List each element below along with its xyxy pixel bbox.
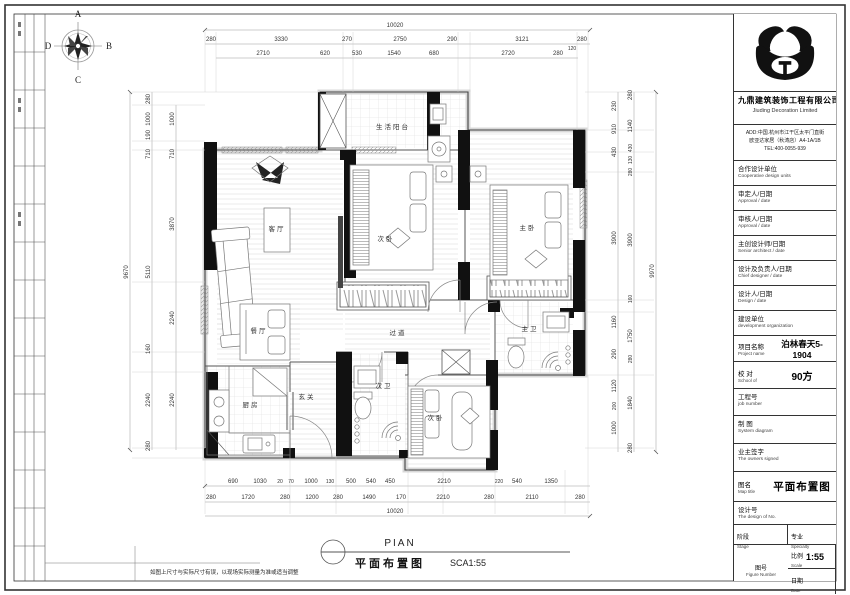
room-label-entry: 玄关 <box>299 392 316 401</box>
svg-text:280: 280 <box>333 495 344 501</box>
company-logo <box>734 14 836 92</box>
svg-text:1350: 1350 <box>544 479 558 485</box>
svg-text:20: 20 <box>277 479 283 485</box>
svg-text:1540: 1540 <box>387 51 401 57</box>
stage-cell: 阶段 Stage <box>734 525 788 545</box>
svg-text:160: 160 <box>628 295 634 304</box>
svg-text:450: 450 <box>385 479 396 485</box>
svg-text:1120: 1120 <box>612 379 618 393</box>
room-label-bedroom3: 次卧 <box>428 413 445 422</box>
svg-text:910: 910 <box>612 123 618 134</box>
compass-label-e: B <box>106 41 112 51</box>
svg-text:3121: 3121 <box>515 37 529 43</box>
svg-text:3900: 3900 <box>628 233 634 247</box>
svg-text:280: 280 <box>628 168 634 177</box>
svg-text:3870: 3870 <box>170 217 176 231</box>
figure-number-cell: 图号 Figure Number <box>734 545 788 594</box>
address-line2: 欧亚达家居（秋涛店）A4-1A/1B <box>738 137 832 145</box>
date-cell: 日期 Date <box>788 569 836 594</box>
dimensions-top: 10020 280 3330 270 2750 290 3121 280 120… <box>206 23 588 57</box>
svg-text:1720: 1720 <box>241 495 255 501</box>
svg-text:280: 280 <box>577 37 588 43</box>
dim-left-total: 9670 <box>124 265 130 279</box>
svg-text:2240: 2240 <box>170 393 176 407</box>
proofread-value: 90方 <box>772 368 832 383</box>
svg-text:2240: 2240 <box>146 393 152 407</box>
system-diagram-row: 制 图 System diagram <box>734 416 836 444</box>
svg-text:1000: 1000 <box>612 421 618 435</box>
map-title-value: 平面布置图 <box>772 479 832 494</box>
dim-right-total: 9970 <box>650 264 656 278</box>
company-name: 九鼎建筑装饰工程有限公司 Jiuding Decoration Limited <box>734 92 836 125</box>
svg-text:5110: 5110 <box>146 265 152 279</box>
svg-text:1000: 1000 <box>170 112 176 126</box>
company-address: ADD:中国.杭州市江干区太平门直街 欧亚达家居（秋涛店）A4-1A/1B TE… <box>734 125 836 161</box>
room-label-balcony: 生活阳台 <box>376 122 410 131</box>
room-label-kitchen: 厨房 <box>243 400 260 409</box>
specialty-cell: 专业 Specialty <box>788 525 836 545</box>
sheet-note: 如图上尺寸与实际尺寸有误，以现场实际测量为准或适当调整 <box>45 546 299 581</box>
svg-text:710: 710 <box>170 148 176 159</box>
svg-text:1490: 1490 <box>362 495 376 501</box>
proofread-row: 校 对 School of 90方 <box>734 362 836 389</box>
svg-text:2750: 2750 <box>393 37 407 43</box>
svg-text:160: 160 <box>146 343 152 354</box>
svg-text:280: 280 <box>628 442 634 453</box>
scale-cell: 比例 Scale 1:55 <box>788 545 836 569</box>
svg-text:2210: 2210 <box>436 495 450 501</box>
svg-text:3330: 3330 <box>274 37 288 43</box>
footer-scale: SCA1:55 <box>450 558 486 568</box>
svg-text:2710: 2710 <box>256 51 270 57</box>
compass-label-w: D <box>45 41 52 51</box>
titleblock-bottom-grid: 阶段 Stage 专业 Specialty 比例 Scale 1:55 图号 F… <box>734 525 836 594</box>
svg-text:680: 680 <box>429 51 440 57</box>
svg-text:130: 130 <box>326 479 335 485</box>
svg-text:1200: 1200 <box>305 495 319 501</box>
svg-text:710: 710 <box>146 148 152 159</box>
footer-title: 平面布置图 <box>355 556 425 570</box>
svg-text:280: 280 <box>146 93 152 104</box>
svg-text:290: 290 <box>612 348 618 359</box>
svg-text:1140: 1140 <box>628 119 634 133</box>
svg-text:170: 170 <box>396 495 407 501</box>
svg-text:690: 690 <box>228 479 239 485</box>
svg-text:130: 130 <box>628 156 634 165</box>
svg-text:620: 620 <box>320 51 331 57</box>
drawing-sheet: A B C D <box>0 0 850 595</box>
note-text: 如图上尺寸与实际尺寸有误，以现场实际测量为准或适当调整 <box>150 568 299 576</box>
compass-rose: A B C D <box>45 9 112 85</box>
titleblock-row-reviewer: 审核人/日期 Approval / date <box>734 211 836 236</box>
svg-text:70: 70 <box>288 479 294 485</box>
titleblock-row-chief-designer: 设计及负责人/日期 Chief designer / date <box>734 261 836 286</box>
compass-label-n: A <box>75 9 82 19</box>
svg-text:280: 280 <box>628 89 634 100</box>
drawing-title-footer: PIAN 平面布置图 SCA1:55 <box>321 538 570 570</box>
titleblock-row-development-org: 建设单位 development organization <box>734 311 836 336</box>
room-label-bedroom2: 次卧 <box>378 234 395 243</box>
svg-text:2210: 2210 <box>437 479 451 485</box>
svg-text:1000: 1000 <box>146 112 152 126</box>
svg-text:540: 540 <box>366 479 377 485</box>
svg-text:2720: 2720 <box>501 51 515 57</box>
svg-text:280: 280 <box>575 495 586 501</box>
owner-signature-row: 业主签字 The owners signed <box>734 444 836 472</box>
svg-text:1160: 1160 <box>612 315 618 329</box>
svg-text:1840: 1840 <box>628 396 634 410</box>
titleblock-row-cooperative: 合作设计单位 Cooperative design units <box>734 161 836 186</box>
svg-text:2110: 2110 <box>526 495 540 501</box>
svg-text:430: 430 <box>612 146 618 157</box>
svg-text:190: 190 <box>146 129 152 140</box>
svg-text:500: 500 <box>346 479 357 485</box>
dimensions-left: 9670 280 1000 190 710 5110 160 2240 280 … <box>124 93 176 451</box>
titleblock-row-approver: 审定人/日期 Approval / date <box>734 186 836 211</box>
svg-text:120: 120 <box>568 46 577 52</box>
compass-label-s: C <box>75 75 81 85</box>
room-label-corridor: 过道 <box>390 328 407 337</box>
svg-text:270: 270 <box>342 37 353 43</box>
svg-text:280: 280 <box>146 440 152 451</box>
svg-text:200: 200 <box>612 402 618 411</box>
svg-text:220: 220 <box>495 479 504 485</box>
project-name-value: 泊林春天5-1904 <box>772 338 832 360</box>
design-number-row: 设计号 The design of No. <box>734 502 836 525</box>
title-block: 九鼎建筑装饰工程有限公司 Jiuding Decoration Limited … <box>733 14 836 581</box>
room-label-living: 客厅 <box>269 224 286 233</box>
dimensions-bottom: 690 1030 20 70 1000 130 500 540 450 2210… <box>206 479 586 515</box>
svg-text:1000: 1000 <box>304 479 318 485</box>
scale-value: 1:55 <box>806 552 824 562</box>
titleblock-row-designer: 设计人/日期 Design / date <box>734 286 836 311</box>
svg-text:230: 230 <box>612 100 618 111</box>
svg-text:430: 430 <box>628 144 634 153</box>
titleblock-row-senior-architect: 主创设计师/日期 Senior architect / date <box>734 236 836 261</box>
svg-text:280: 280 <box>628 355 634 364</box>
dim-top-total: 10020 <box>387 23 404 29</box>
address-line1: ADD:中国.杭州市江干区太平门直街 <box>738 129 832 137</box>
map-title-row: 图名 Map title 平面布置图 <box>734 472 836 502</box>
room-label-master-bath: 主卫 <box>522 324 539 333</box>
floor-plan-canvas: A B C D <box>0 0 850 595</box>
svg-text:280: 280 <box>280 495 291 501</box>
tv-cabinet <box>338 216 343 288</box>
company-tel: TEL:400-0055-939 <box>738 145 832 153</box>
dim-bottom-total: 10020 <box>387 509 404 515</box>
room-label-bath2: 次卫 <box>376 381 393 390</box>
room-label-master: 主卧 <box>520 223 537 232</box>
svg-text:1030: 1030 <box>253 479 267 485</box>
svg-text:1750: 1750 <box>628 329 634 343</box>
bedroom3-bed <box>408 386 490 458</box>
svg-text:280: 280 <box>553 51 564 57</box>
svg-text:2240: 2240 <box>170 311 176 325</box>
svg-text:280: 280 <box>206 37 217 43</box>
project-name-row: 项目名称 Project name 泊林春天5-1904 <box>734 336 836 362</box>
svg-text:3900: 3900 <box>612 231 618 245</box>
svg-text:530: 530 <box>352 51 363 57</box>
svg-text:290: 290 <box>447 37 458 43</box>
svg-text:280: 280 <box>484 495 495 501</box>
left-binding-strip <box>14 14 45 581</box>
room-label-dining: 餐厅 <box>251 326 268 335</box>
company-name-cn: 九鼎建筑装饰工程有限公司 <box>738 95 832 106</box>
job-number-row: 工程号 job number <box>734 389 836 416</box>
footer-code: PIAN <box>384 538 415 549</box>
company-name-en: Jiuding Decoration Limited <box>738 108 832 114</box>
svg-text:280: 280 <box>206 495 217 501</box>
svg-text:540: 540 <box>512 479 523 485</box>
